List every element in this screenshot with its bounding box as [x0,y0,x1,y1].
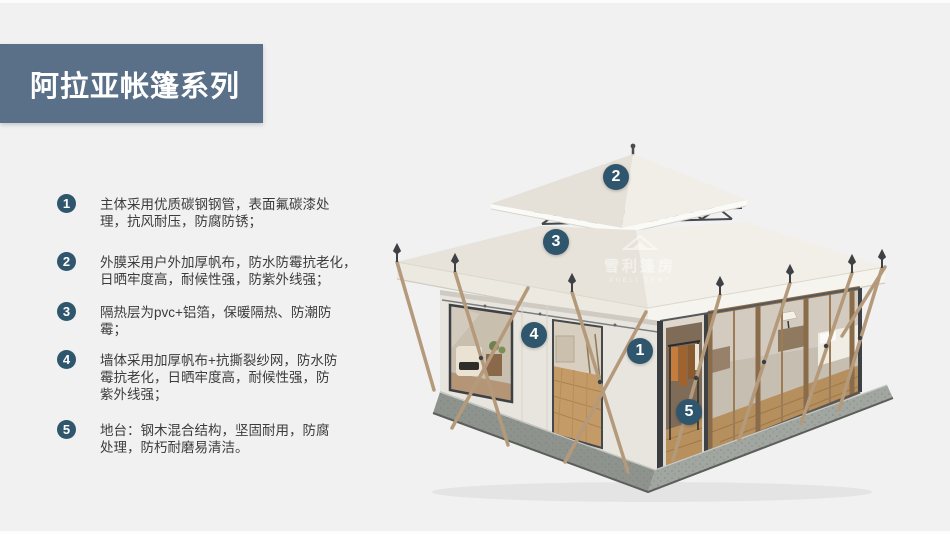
hanging-clothes [671,347,678,381]
tent-marker-5: 5 [676,399,702,425]
tent-marker-4: 4 [521,322,547,348]
tent-marker-3: 3 [543,229,569,255]
feature-item-3: 3 隔热层为pvc+铝箔，保暖隔热、防潮防 霉； [57,302,382,338]
feature-text-4: 墙体采用加厚帆布+抗撕裂纱网，防水防 霉抗老化，日晒牢度高，耐候性强，防 紫外线… [100,352,382,403]
feature-item-2: 2 外膜采用户外加厚帆布，防水防霉抗老化， 日晒牢度高，耐候性强，防紫外线强； [57,252,382,288]
page-title: 阿拉亚帐篷系列 [0,44,263,123]
page-title-text: 阿拉亚帐篷系列 [30,63,240,105]
wardrobe-hint [556,336,574,362]
watermark-en: XUELI TENT [609,277,671,284]
feature-bullet-3: 3 [57,302,76,321]
tent-illustration: 雪利篷房 XUELI TENT [390,140,950,530]
tent-marker-2: 2 [603,164,629,190]
tent-marker-1: 1 [627,338,653,364]
feature-bullet-1: 1 [57,194,76,213]
feature-bullet-5: 5 [57,420,76,439]
feature-bullet-2: 2 [57,252,76,271]
top-edge-strip [0,0,950,3]
feature-item-1: 1 主体采用优质碳钢钢管，表面氟碳漆处 理，抗风耐压，防腐防锈； [57,194,382,230]
feature-text-5: 地台：钢木混合结构，坚固耐用，防腐 处理，防朽耐磨易清洁。 [100,422,382,456]
feature-text-2: 外膜采用户外加厚帆布，防水防霉抗老化， 日晒牢度高，耐候性强，防紫外线强； [100,254,382,288]
feature-bullet-4: 4 [57,350,76,369]
watermark-cn: 雪利篷房 [604,257,676,275]
open-doorway [553,320,602,448]
feature-item-4: 4 墙体采用加厚帆布+抗撕裂纱网，防水防 霉抗老化，日晒牢度高，耐候性强，防 紫… [57,350,382,403]
feature-text-3: 隔热层为pvc+铝箔，保暖隔热、防潮防 霉； [100,304,382,338]
feature-text-1: 主体采用优质碳钢钢管，表面氟碳漆处 理，抗风耐压，防腐防锈； [100,196,382,230]
feature-item-5: 5 地台：钢木混合结构，坚固耐用，防腐 处理，防朽耐磨易清洁。 [57,420,382,456]
